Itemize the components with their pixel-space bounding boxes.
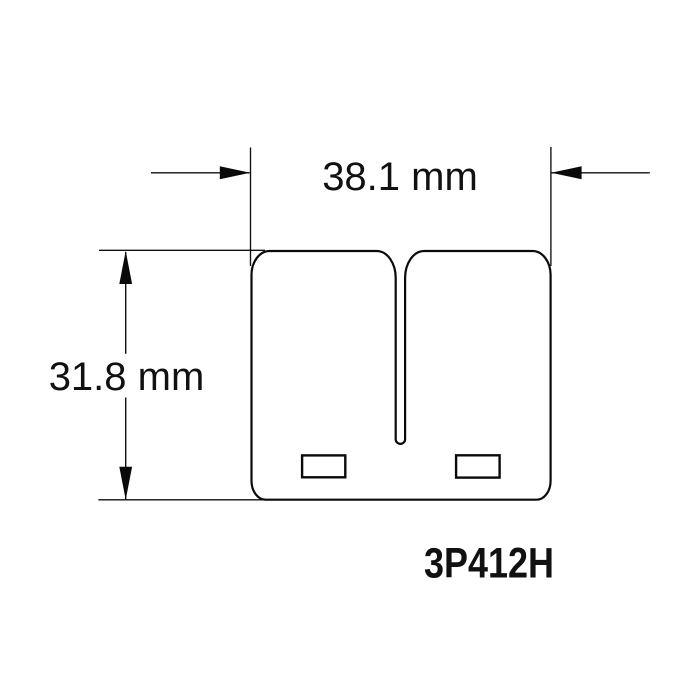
svg-text:31.8 mm: 31.8 mm: [49, 355, 205, 399]
svg-text:3P412H: 3P412H: [424, 540, 554, 588]
svg-text:38.1 mm: 38.1 mm: [322, 155, 478, 199]
